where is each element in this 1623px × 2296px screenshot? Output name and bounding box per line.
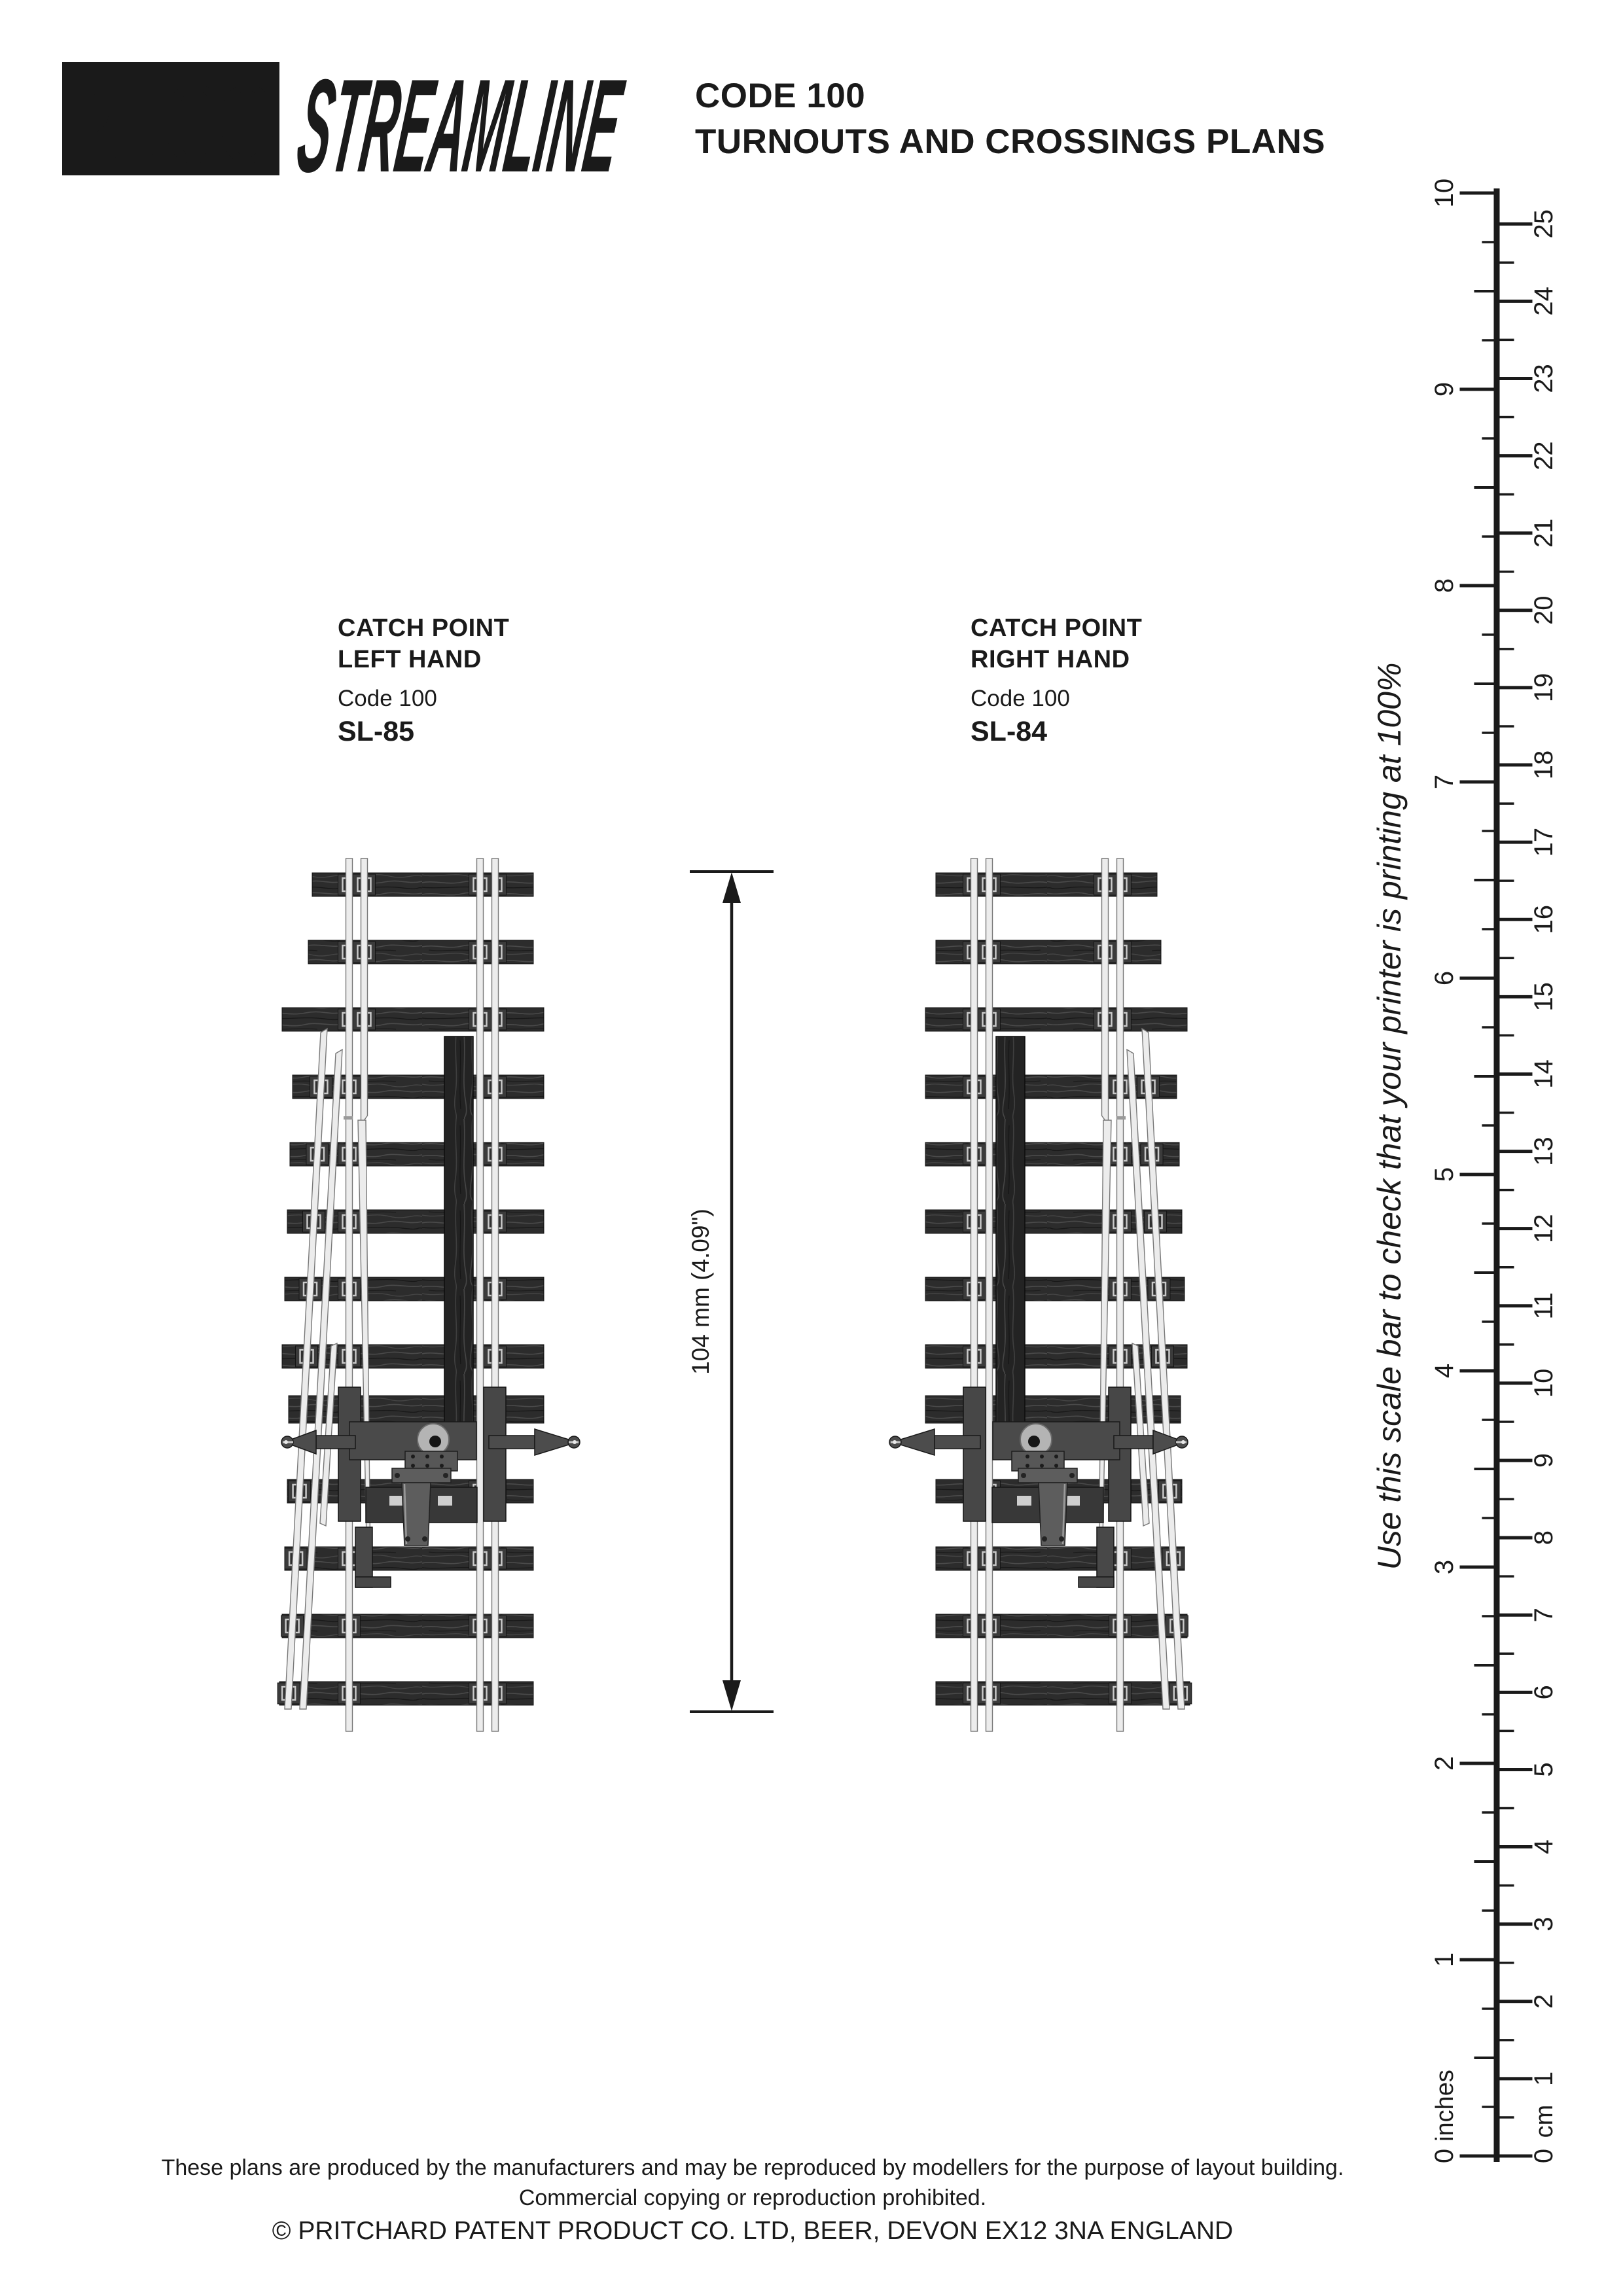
plan-sheet: PECO STREAMLINE 104 mm (4.09") Use this … (0, 0, 1623, 2296)
peco-logo-text: PECO (65, 58, 277, 188)
screw (443, 1473, 448, 1478)
product-sku: SL-85 (338, 716, 796, 747)
blade-anchor-right (484, 1387, 506, 1521)
ruler-inch-label: 4 (1430, 1364, 1459, 1378)
ruler-cm-label: 17 (1529, 828, 1558, 857)
ruler-cm-label: 23 (1529, 364, 1558, 393)
ruler-cm-label: 8 (1529, 1530, 1558, 1545)
ruler-inch-label: 7 (1430, 775, 1459, 789)
t-bracket-bar (392, 1468, 451, 1483)
check-timber (444, 1036, 473, 1442)
footer-line3: © PRITCHARD PATENT PRODUCT CO. LTD, BEER… (0, 2214, 1505, 2248)
product-code: Code 100 (971, 686, 1429, 712)
ruler-cm-label: 10 (1529, 1369, 1558, 1398)
screw (422, 1536, 427, 1542)
footer-line2: Commercial copying or reproduction prohi… (0, 2183, 1505, 2213)
ruler-cm-label: 6 (1529, 1685, 1558, 1699)
stock-rail-right (492, 858, 499, 1731)
ruler-cm-label: 24 (1529, 287, 1558, 316)
product-sku: SL-84 (971, 716, 1429, 747)
ruler-inch-label: 9 (1430, 382, 1459, 397)
footer: These plans are produced by the manufact… (0, 2153, 1505, 2248)
product-name-line1: CATCH POINT (971, 612, 1429, 644)
screw (425, 1455, 429, 1458)
ruler-cm-label: 19 (1529, 673, 1558, 703)
ruler-cm-label: 21 (1529, 518, 1558, 548)
ruler-inch-label: 5 (1430, 1167, 1459, 1182)
product-name-line1: CATCH POINT (338, 612, 796, 644)
ruler-cm-label: 25 (1529, 209, 1558, 239)
ruler-cm-label: 4 (1529, 1839, 1558, 1854)
stretcher-arm-left (316, 1436, 355, 1449)
page-title-line1: CODE 100 (695, 73, 1325, 119)
ruler-inch-label: 6 (1430, 971, 1459, 985)
screw (411, 1464, 415, 1468)
screw (411, 1455, 415, 1458)
plan-graphics: PECO STREAMLINE 104 mm (4.09") Use this … (0, 0, 1623, 2296)
ruler-cm-label: 14 (1529, 1059, 1558, 1089)
product-name-line2: LEFT HAND (338, 644, 796, 675)
ruler-cm-label: 2 (1529, 1994, 1558, 2009)
screw (440, 1464, 444, 1468)
stock-rail-left (346, 858, 353, 1731)
scale-ruler: 0123456789100123456789101112131415161718… (1430, 179, 1558, 2163)
ruler-inch-label: 8 (1430, 578, 1459, 593)
ruler-cm-label: 15 (1529, 982, 1558, 1012)
streamline-logo-text: STREAMLINE (290, 52, 631, 200)
page-title-line2: TURNOUTS AND CROSSINGS PLANS (695, 119, 1325, 165)
ruler-inch-label: 10 (1430, 179, 1459, 208)
dimension-label: 104 mm (4.09") (687, 1209, 714, 1375)
pivot-hole (429, 1436, 441, 1447)
screw (405, 1536, 410, 1542)
track-diagram-left-hand (277, 858, 580, 1731)
screw (440, 1455, 444, 1458)
footer-line1: These plans are produced by the manufact… (0, 2153, 1505, 2183)
ruler-cm-label: 11 (1529, 1292, 1558, 1320)
blade-bracket-foot (355, 1577, 391, 1587)
ruler-cm-label: 22 (1529, 441, 1558, 470)
product-name-line2: RIGHT HAND (971, 644, 1429, 675)
product-name: CATCH POINT RIGHT HAND (971, 612, 1429, 675)
ruler-inch-label: 1 (1430, 1952, 1459, 1967)
product-name: CATCH POINT LEFT HAND (338, 612, 796, 675)
ruler-inch-label: 2 (1430, 1756, 1459, 1771)
ruler-cm-label: 0 (1529, 2149, 1558, 2163)
ruler-cm-label: 20 (1529, 596, 1558, 626)
inner-rail-left (361, 858, 368, 1125)
ruler-cm-label: 1 (1529, 2072, 1558, 2086)
rail-joint (344, 1116, 353, 1120)
arrowhead-down-icon (722, 1680, 741, 1711)
arrowhead-up-icon (722, 872, 741, 903)
ruler-instruction: Use this scale bar to check that your pr… (1371, 663, 1408, 1570)
track-diagram-right-hand (889, 858, 1192, 1731)
screw (395, 1473, 400, 1478)
spring-clip-left (389, 1496, 404, 1506)
ruler-cm-label: 5 (1529, 1762, 1558, 1776)
ruler-cm-label: 12 (1529, 1214, 1558, 1243)
ruler-bar (1494, 188, 1500, 2162)
ruler-cm-unit-label: cm (1531, 2105, 1558, 2138)
inner-rail-right (477, 858, 484, 1731)
ruler-cm-label: 13 (1529, 1137, 1558, 1166)
page-title: CODE 100 TURNOUTS AND CROSSINGS PLANS (695, 73, 1325, 165)
ruler-cm-label: 18 (1529, 751, 1558, 780)
stretcher-pin-left (284, 1440, 288, 1444)
ruler-cm-label: 3 (1529, 1917, 1558, 1932)
ruler-inch-label: 3 (1430, 1560, 1459, 1574)
ruler-cm-label: 7 (1529, 1608, 1558, 1622)
ruler-cm-label: 9 (1529, 1453, 1558, 1468)
ruler-cm-label: 16 (1529, 905, 1558, 934)
ruler-inches-unit-label: inches (1431, 2070, 1459, 2142)
screw (425, 1464, 429, 1468)
spring-clip-right (438, 1496, 452, 1506)
product-label-left: CATCH POINT LEFT HAND Code 100 SL-85 (338, 612, 796, 747)
stretcher-pin-right (573, 1440, 577, 1444)
product-label-right: CATCH POINT RIGHT HAND Code 100 SL-84 (971, 612, 1429, 747)
stretcher-arm-right (489, 1436, 535, 1449)
product-code: Code 100 (338, 686, 796, 712)
